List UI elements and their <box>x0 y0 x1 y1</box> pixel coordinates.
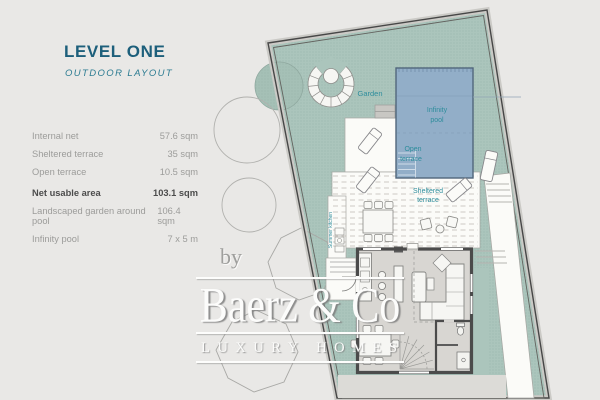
measurement-label: Net usable area <box>32 188 101 198</box>
measurement-label: Landscaped garden around pool <box>32 206 157 226</box>
outdoor-dining-set <box>363 202 393 242</box>
sheltered-terrace-label-1: Sheltered <box>413 188 443 195</box>
entrance-landing <box>326 258 356 300</box>
measurement-label: Sheltered terrace <box>32 149 103 159</box>
measurement-value: 7 x 5 m <box>168 234 198 244</box>
bar-stool <box>378 271 385 278</box>
measurement-row: Sheltered terrace 35 sqm <box>32 149 198 159</box>
horseshoe-paving <box>308 57 354 107</box>
coffee-table <box>427 278 434 290</box>
measurement-value: 103.1 sqm <box>153 188 198 198</box>
dining-table <box>359 334 391 356</box>
measurement-value: 10.5 sqm <box>160 167 198 177</box>
floorplan-page: Garden Infinity pool Open terrace Shelte… <box>0 0 600 400</box>
shower <box>457 352 470 369</box>
kitchen-island <box>394 266 403 302</box>
terrace-door <box>407 244 418 250</box>
measurements-primary: Internal net 57.6 sqm Sheltered terrace … <box>32 131 198 206</box>
open-terrace-label-2: terrace <box>400 156 422 163</box>
open-terrace-label-1: Open <box>404 146 421 153</box>
measurement-row: Open terrace 10.5 sqm <box>32 167 198 177</box>
rear-paving <box>338 375 506 398</box>
measurement-row-total: Net usable area 103.1 sqm <box>32 188 198 198</box>
infinity-pool-label-1: Infinity <box>427 107 448 114</box>
kitchen-sink <box>362 287 367 292</box>
infinity-pool-label-2: pool <box>430 117 444 124</box>
measurement-row: Infinity pool 7 x 5 m <box>32 234 198 244</box>
measurement-row: Internal net 57.6 sqm <box>32 131 198 141</box>
page-subtitle: OUTDOOR LAYOUT <box>65 68 173 79</box>
bar-stool <box>378 282 385 289</box>
measurement-label: Open terrace <box>32 167 86 177</box>
sheltered-terrace-label-2: terrace <box>417 197 439 204</box>
measurement-value: 35 sqm <box>168 149 199 159</box>
measurements-secondary: Landscaped garden around pool 106.4 sqm … <box>32 206 198 253</box>
garden-label: Garden <box>357 89 382 98</box>
bar-stool <box>378 293 385 300</box>
summer-kitchen-units <box>335 228 344 252</box>
measurement-label: Internal net <box>32 131 79 141</box>
measurement-value: 57.6 sqm <box>160 131 198 141</box>
page-title: LEVEL ONE <box>64 42 165 62</box>
summer-kitchen-label: Summer kitchen <box>328 212 334 248</box>
measurement-row: Landscaped garden around pool 106.4 sqm <box>32 206 198 226</box>
measurement-value: 106.4 sqm <box>157 206 198 226</box>
toilet <box>457 327 463 335</box>
measurement-label: Infinity pool <box>32 234 79 244</box>
